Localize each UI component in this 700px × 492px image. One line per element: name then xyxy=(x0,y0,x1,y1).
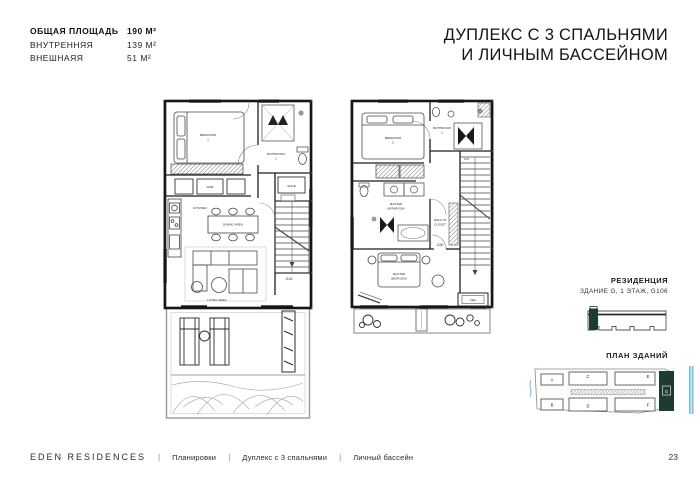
footer-item-duplex: Дуплекс с 3 спальнями xyxy=(242,453,327,462)
brand-logo: EDEN RESIDENCES xyxy=(30,452,146,462)
room-label-bedroom2-num: 2 xyxy=(392,141,394,145)
master-bathroom-fixtures xyxy=(359,183,428,241)
page-number: 23 xyxy=(669,452,678,462)
area-external-label: ВНЕШНАЯЯ xyxy=(30,52,127,66)
footer-item-planning: Планировки xyxy=(172,453,216,462)
residence-block: РЕЗИДЕНЦИЯ ЗДАНИЕ G, 1 ЭТАЖ, G106 xyxy=(580,276,668,295)
page-title: ДУПЛЕКС С 3 СПАЛЬНЯМИ И ЛИЧНЫМ БАССЕЙНОМ xyxy=(444,25,668,65)
balcony xyxy=(354,309,490,333)
terrace-area xyxy=(167,308,310,418)
room-label-living: LIVING AREA xyxy=(207,298,227,302)
page-title-line2: И ЛИЧНЫМ БАССЕЙНОМ xyxy=(444,45,668,65)
room-label-master-bed-1: MASTER xyxy=(393,272,406,276)
room-label-kitchen: KITCHEN xyxy=(193,206,207,210)
building-label-b: B xyxy=(551,402,554,407)
area-row-external: ВНЕШНАЯЯ 51 М² xyxy=(30,52,156,66)
bed-1 xyxy=(174,112,244,163)
building-label-f: F xyxy=(647,402,650,407)
stairs-down xyxy=(460,157,490,275)
wardrobe-hatch xyxy=(171,164,243,174)
closet-label-wine: WINE xyxy=(207,185,214,189)
room-label-bedroom1-num: 1 xyxy=(207,138,209,142)
footer: EDEN RESIDENCES | Планировки | Дуплекс с… xyxy=(30,452,413,462)
footer-item-pool: Личный бассейн xyxy=(353,453,413,462)
closet-rail xyxy=(449,203,458,245)
room-label-walkin-2: CLOSET xyxy=(434,223,446,227)
stairs-up xyxy=(275,201,309,273)
room-label-master-bath-2: BATHROOM xyxy=(387,207,405,211)
closet-label-shoe: SHOE xyxy=(287,184,296,188)
area-internal-value: 139 М² xyxy=(127,39,156,53)
siteplan-diagram: A C E B D F G xyxy=(527,364,697,418)
room-label-walkin-1: WALK-IN xyxy=(434,218,446,222)
page-title-line1: ДУПЛЕКС С 3 СПАЛЬНЯМИ xyxy=(444,25,668,45)
area-internal-label: ВНУТРЕННЯЯ xyxy=(30,39,127,53)
room-label-dining: DINING AREA xyxy=(223,223,244,227)
door-arcs xyxy=(412,121,446,249)
building-outline xyxy=(588,307,666,331)
wardrobe-cabinets xyxy=(376,165,424,178)
stairs-label-down: DN. xyxy=(464,157,469,161)
room-label-bedroom1: BEDROOM xyxy=(200,133,216,137)
upper-floor-plan: BEDROOM 2 BATHROOM 2 xyxy=(350,99,495,339)
footer-separator: | xyxy=(339,453,341,462)
area-total-value: 190 М² xyxy=(127,25,156,39)
building-section-diagram xyxy=(584,300,670,336)
building-label-a: A xyxy=(551,377,554,382)
sea-strip-highlight xyxy=(691,366,692,414)
garden-pattern xyxy=(172,381,303,415)
room-label-bedroom2: BEDROOM xyxy=(385,136,401,140)
wall-segments xyxy=(351,100,487,309)
room-label-bathroom2: BATHROOM xyxy=(433,126,451,130)
area-info: ОБЩАЯ ПЛОЩАДЬ 190 М² ВНУТРЕННЯЯ 139 М² В… xyxy=(30,25,156,66)
living-sofa xyxy=(185,247,266,301)
area-total-label: ОБЩАЯ ПЛОЩАДЬ xyxy=(30,25,127,39)
siteplan-heading: ПЛАН ЗДАНИЙ xyxy=(606,351,668,360)
area-external-value: 51 М² xyxy=(127,52,151,66)
room-label-bathroom2-num: 2 xyxy=(441,131,443,135)
building-label-d: D xyxy=(586,403,589,408)
building-label-e: E xyxy=(647,374,650,379)
building-label-c: C xyxy=(586,374,589,379)
planter xyxy=(282,311,295,372)
ground-floor-plan: BEDROOM 1 BATHROOM 1 WINE SHOE xyxy=(163,99,313,421)
footer-separator: | xyxy=(158,453,160,462)
highlighted-unit xyxy=(589,309,598,331)
site-road-hatch xyxy=(571,390,645,395)
utility-box xyxy=(281,195,295,201)
shore-wave xyxy=(530,380,531,397)
dimension-label-upper: 1100 xyxy=(437,243,444,247)
kitchen-counter xyxy=(168,199,181,257)
room-label-master-bath-1: MASTER xyxy=(390,202,403,206)
area-row-total: ОБЩАЯ ПЛОЩАДЬ 190 М² xyxy=(30,25,156,39)
building-label-g: G xyxy=(665,389,668,394)
dimension-label-ground: 1100 xyxy=(285,277,292,281)
residence-subheading: ЗДАНИЕ G, 1 ЭТАЖ, G106 xyxy=(580,288,668,295)
residence-heading: РЕЗИДЕНЦИЯ xyxy=(580,276,668,285)
sun-loungers xyxy=(180,318,229,365)
room-label-bathroom1-num: 1 xyxy=(275,157,277,161)
brochure-page: ОБЩАЯ ПЛОЩАДЬ 190 М² ВНУТРЕННЯЯ 139 М² В… xyxy=(0,0,700,492)
room-label-bathroom1: BATHROOM xyxy=(267,152,285,156)
door-arcs xyxy=(233,103,275,219)
footer-separator: | xyxy=(228,453,230,462)
vrv-label: VRV xyxy=(470,299,477,303)
room-label-master-bed-2: BEDROOM xyxy=(391,277,407,281)
area-row-internal: ВНУТРЕННЯЯ 139 М² xyxy=(30,39,156,53)
